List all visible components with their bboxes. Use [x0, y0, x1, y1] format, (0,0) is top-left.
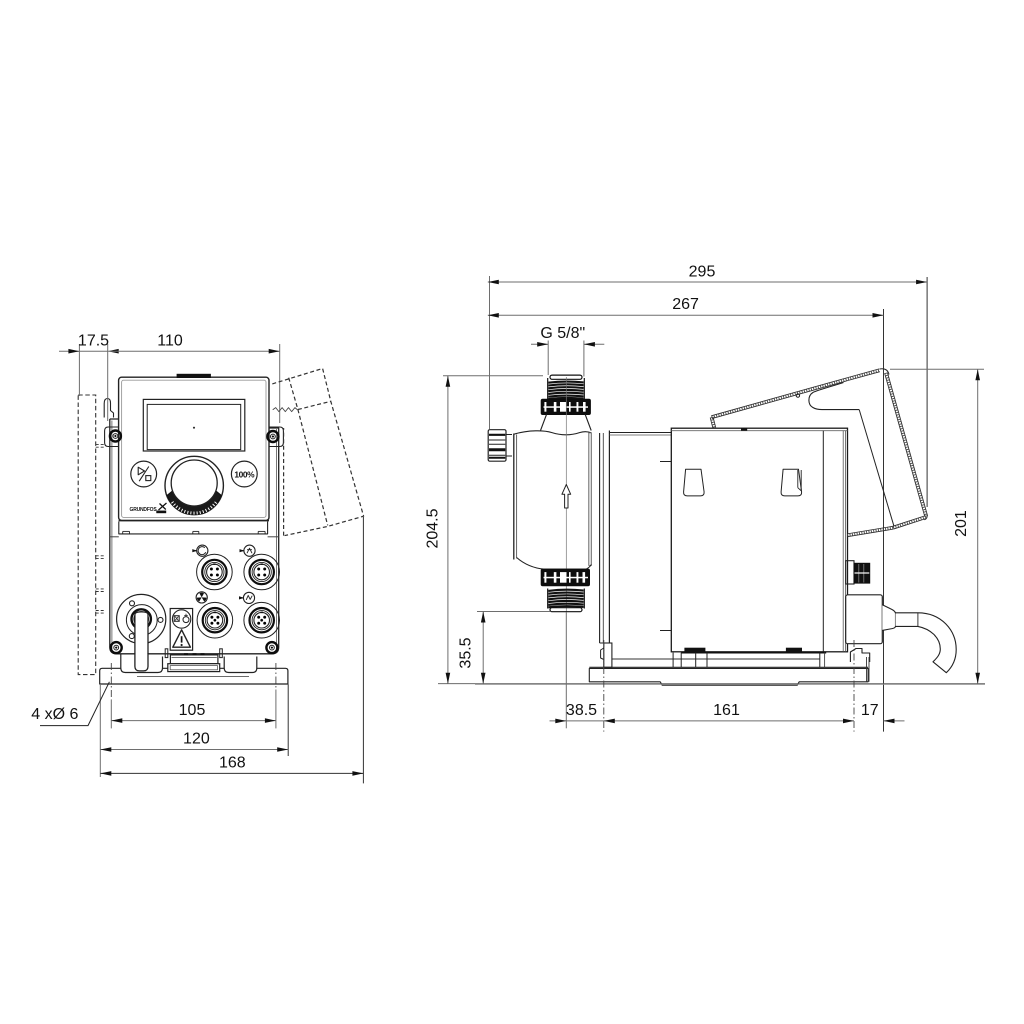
svg-text:295: 295 — [689, 264, 716, 281]
svg-text:17.5: 17.5 — [78, 333, 109, 350]
svg-text:267: 267 — [672, 296, 699, 313]
svg-text:110: 110 — [157, 333, 183, 350]
svg-text:38.5: 38.5 — [566, 702, 597, 719]
svg-text:168: 168 — [219, 755, 246, 772]
svg-text:G 5/8": G 5/8" — [540, 325, 585, 342]
svg-text:161: 161 — [713, 702, 740, 719]
svg-text:GRUNDFOS: GRUNDFOS — [130, 507, 158, 513]
svg-text:100%: 100% — [234, 470, 255, 480]
svg-text:35.5: 35.5 — [458, 637, 475, 668]
svg-text:105: 105 — [179, 702, 206, 719]
svg-text:17: 17 — [861, 702, 879, 719]
svg-text:201: 201 — [953, 510, 970, 537]
svg-text:120: 120 — [183, 731, 210, 748]
svg-text:4 xØ 6: 4 xØ 6 — [31, 706, 78, 723]
svg-text:204.5: 204.5 — [425, 508, 442, 548]
